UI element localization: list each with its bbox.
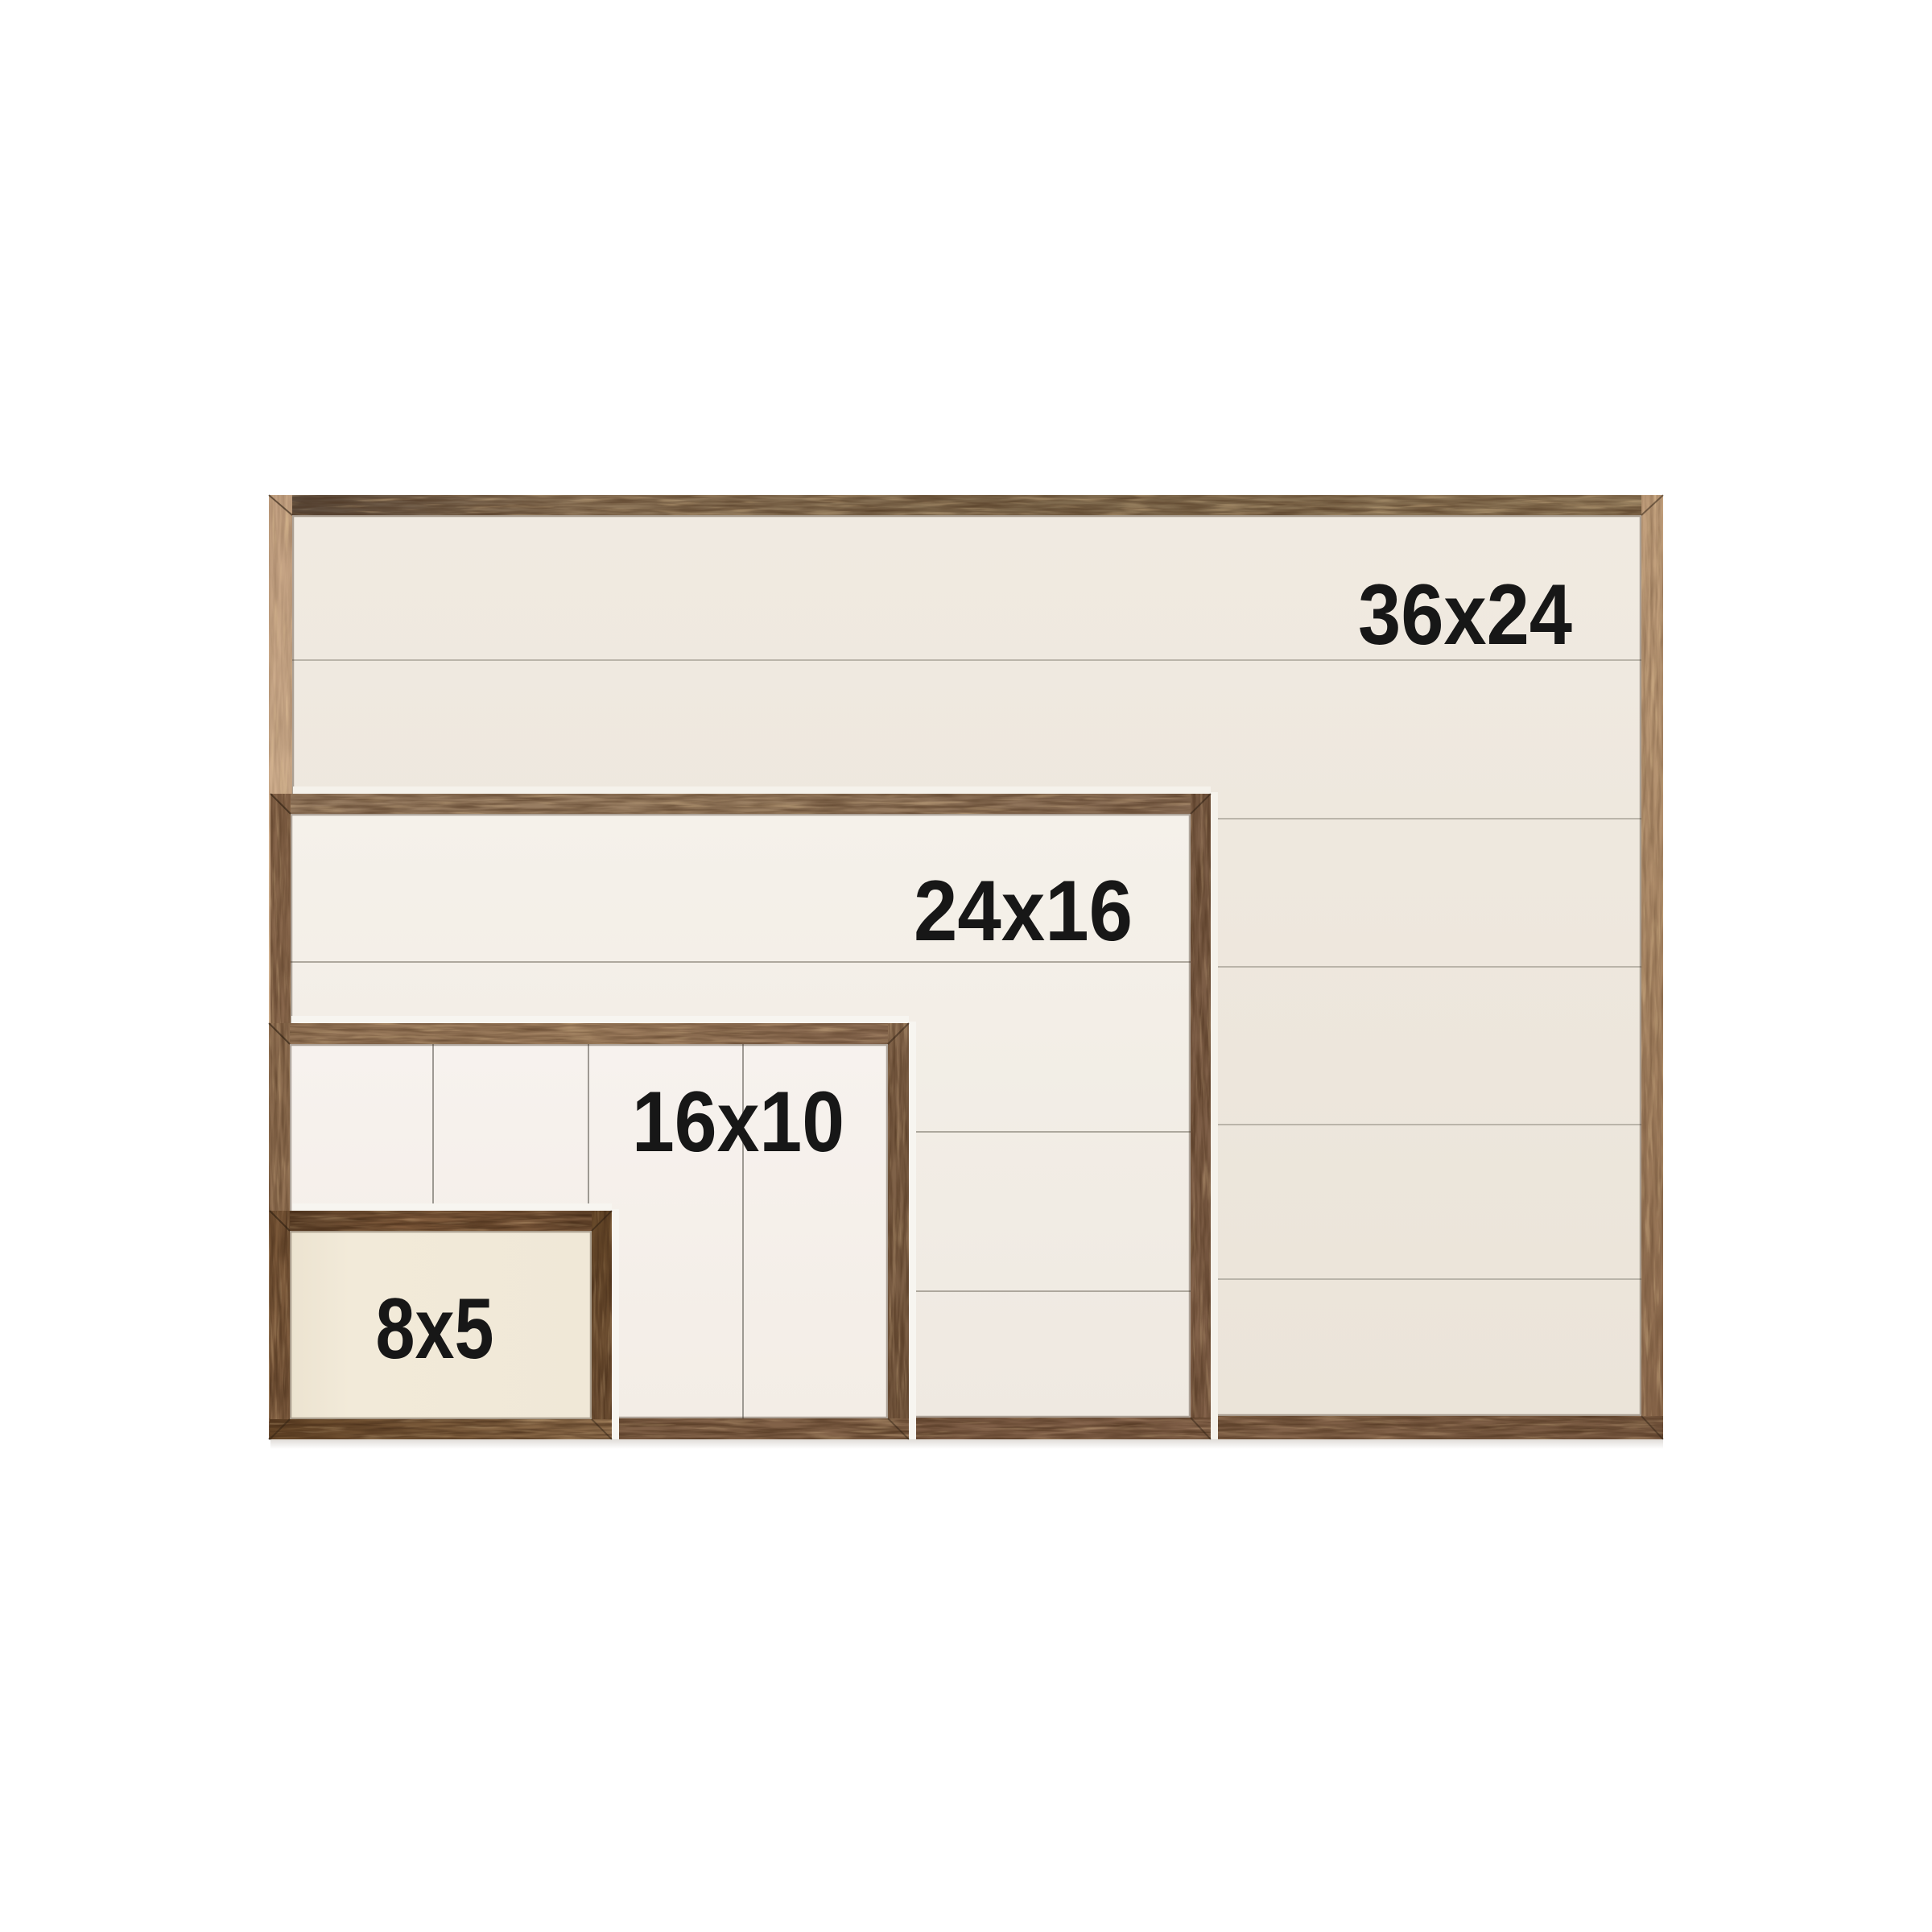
svg-text:8x5: 8x5 (376, 1280, 494, 1377)
svg-text:36x24: 36x24 (1358, 566, 1572, 663)
svg-text:16x10: 16x10 (632, 1073, 844, 1170)
svg-text:24x16: 24x16 (914, 862, 1133, 959)
